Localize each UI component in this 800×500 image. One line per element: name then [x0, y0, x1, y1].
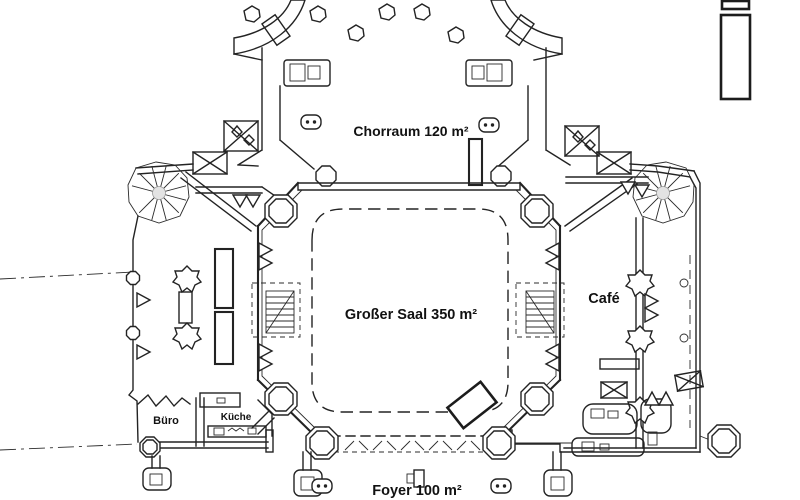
room-cafe: Café: [588, 218, 703, 448]
floor-socket-icon: [479, 118, 499, 132]
scale-bar-segment-small: [722, 1, 749, 9]
door-swing-icon: [259, 344, 272, 358]
room-foyer: Foyer 100 m²: [143, 452, 572, 499]
porch-tower: [143, 468, 171, 490]
room-kueche: Küche: [200, 393, 274, 437]
door-swing-icon: [259, 357, 272, 371]
pillar: [140, 437, 160, 457]
service-box-right: [565, 126, 599, 156]
floor-plan-page: Chorraum 120 m² Großer Saal 350 m² Büro: [0, 0, 800, 500]
pillar: [521, 383, 553, 415]
floor-plan: Chorraum 120 m² Großer Saal 350 m² Büro: [0, 0, 800, 500]
room-grosser-saal: Großer Saal 350 m²: [312, 209, 508, 428]
stair-box-left: [193, 152, 227, 174]
threshold-hatching: [345, 441, 480, 450]
kitchen-counter: [200, 393, 240, 407]
pillar: [708, 425, 740, 457]
table: [215, 312, 233, 364]
wall-pilaster: [127, 272, 140, 285]
room-label-foyer: Foyer 100 m²: [372, 483, 462, 499]
stair-box-small: [601, 382, 627, 398]
wall-diagonal-left: [181, 172, 256, 231]
corridor-room-left: [284, 60, 330, 86]
stair-box-right: [597, 152, 631, 174]
column-ornament-icon: [626, 270, 654, 296]
door-swing-icon: [546, 256, 559, 270]
pillar: [265, 195, 297, 227]
pillar: [265, 383, 297, 415]
stone-fragment: [244, 6, 260, 22]
wall-fixture: [680, 279, 688, 287]
door-swing-icon: [546, 243, 559, 257]
stage-platform: [447, 382, 496, 428]
door-swing-icon: [546, 357, 559, 371]
table: [215, 249, 233, 308]
pillar: [521, 195, 553, 227]
door-swing-icon: [645, 308, 658, 322]
column-ornament-icon: [173, 266, 201, 292]
pillar: [483, 427, 515, 459]
door-swing-icon: [546, 344, 559, 358]
door-swing-icon: [233, 195, 247, 207]
table: [179, 292, 192, 323]
door-swing-icon: [259, 243, 272, 257]
floor-socket-icon: [301, 115, 321, 129]
stairs-right: [516, 283, 564, 337]
stone-fragment: [348, 25, 364, 41]
stone-fragment: [310, 6, 326, 22]
stone-fragment: [379, 4, 395, 20]
apse-ramp-right: [491, 0, 562, 54]
room-label-cafe: Café: [588, 291, 619, 307]
scale-bar-segment-large: [721, 15, 750, 99]
stone-fragment: [414, 4, 430, 20]
stone-fragment: [448, 27, 464, 43]
stairs-left: [252, 283, 300, 337]
room-label-buero: Büro: [153, 415, 179, 427]
column-ornament-icon: [173, 323, 201, 349]
boundary-lines: [0, 272, 137, 450]
wall-pilaster: [127, 327, 140, 340]
door-swing-icon: [246, 195, 260, 207]
corridor-room-right: [466, 60, 512, 86]
room-label-kueche: Küche: [221, 412, 252, 423]
room-label-chorraum: Chorraum 120 m²: [353, 123, 468, 139]
west-wing: [173, 249, 233, 364]
scale-bar: [721, 1, 750, 99]
apse-ramp-left: [234, 0, 305, 54]
floor-socket-icon: [312, 479, 332, 493]
corridors: [238, 48, 570, 170]
stairs-icon: [526, 291, 554, 333]
door-swing-icon: [137, 293, 150, 307]
porch-tower: [544, 470, 572, 496]
service-box-left: [224, 121, 258, 151]
door-swing-icon: [137, 345, 150, 359]
room-chorraum: Chorraum 120 m²: [301, 115, 511, 186]
wc-room: [572, 438, 644, 456]
stair-box-small: [675, 371, 703, 391]
foyer-row: [266, 430, 512, 452]
door-swing-icon: [259, 256, 272, 270]
cafe-counter: [600, 359, 639, 369]
wall-fixture: [680, 334, 688, 342]
door-swing-icon: [635, 185, 649, 197]
door-swing-icon: [621, 182, 635, 194]
apse: [234, 0, 562, 60]
stairs-icon: [266, 291, 294, 333]
floor-socket-icon: [491, 479, 511, 493]
column-ornament-icon: [626, 326, 654, 352]
room-label-grosser-saal: Großer Saal 350 m²: [345, 307, 477, 323]
choir-furniture: [469, 139, 482, 185]
door-swing-icon: [645, 294, 658, 308]
